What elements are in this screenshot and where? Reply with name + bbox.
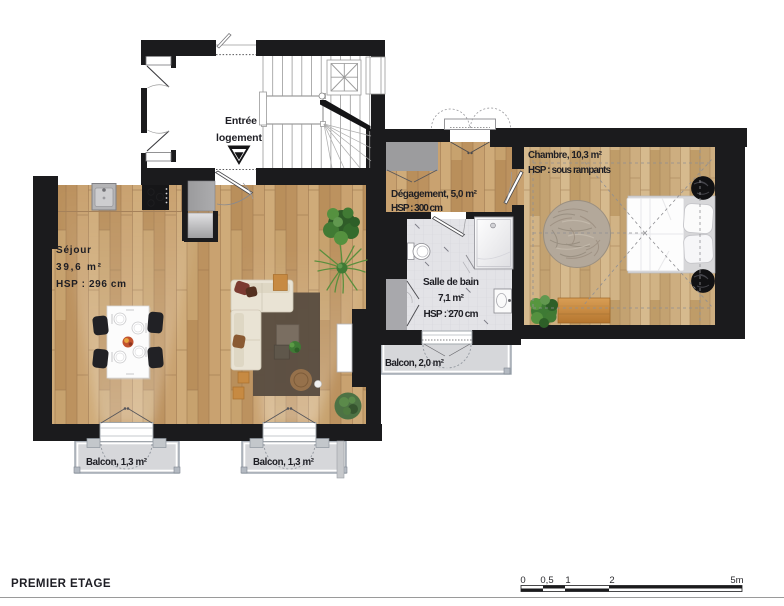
svg-text:7,1 m²: 7,1 m² bbox=[438, 293, 465, 304]
svg-text:Entrée: Entrée bbox=[225, 115, 257, 127]
svg-text:HSP : sous rampants: HSP : sous rampants bbox=[528, 165, 611, 176]
svg-text:Chambre, 10,3 m²: Chambre, 10,3 m² bbox=[528, 150, 603, 161]
svg-text:Balcon, 1,3 m²: Balcon, 1,3 m² bbox=[86, 457, 148, 468]
svg-text:PREMIER ETAGE: PREMIER ETAGE bbox=[11, 578, 111, 590]
svg-text:39,6 m²: 39,6 m² bbox=[56, 262, 102, 273]
svg-text:HSP : 300 cm: HSP : 300 cm bbox=[391, 203, 443, 214]
svg-text:Salle de bain: Salle de bain bbox=[423, 277, 479, 288]
svg-text:1: 1 bbox=[565, 575, 570, 586]
svg-text:logement: logement bbox=[216, 132, 263, 144]
svg-text:Balcon, 2,0 m²: Balcon, 2,0 m² bbox=[385, 358, 445, 369]
svg-text:HSP : 270 cm: HSP : 270 cm bbox=[424, 309, 479, 320]
svg-text:2: 2 bbox=[609, 575, 614, 586]
svg-text:HSP : 296 cm: HSP : 296 cm bbox=[56, 279, 126, 290]
svg-text:Balcon, 1,3 m²: Balcon, 1,3 m² bbox=[253, 457, 315, 468]
svg-text:Séjour: Séjour bbox=[56, 245, 91, 256]
svg-text:0: 0 bbox=[520, 575, 525, 586]
svg-text:5m: 5m bbox=[730, 575, 743, 586]
svg-text:Dégagement, 5,0 m²: Dégagement, 5,0 m² bbox=[391, 189, 478, 200]
svg-text:0,5: 0,5 bbox=[540, 575, 553, 586]
